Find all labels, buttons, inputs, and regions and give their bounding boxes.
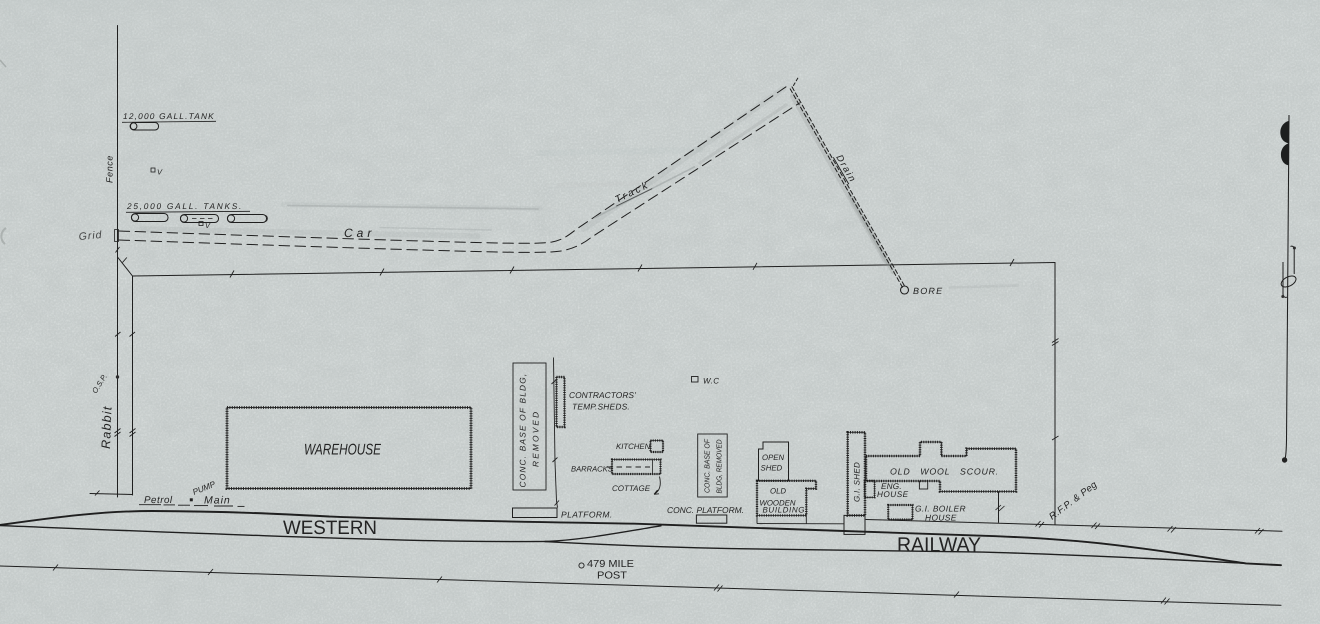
svg-text:W.C: W.C: [703, 377, 719, 386]
svg-text:BUILDING: BUILDING: [763, 506, 806, 515]
svg-text:SHED: SHED: [761, 464, 783, 473]
svg-text:12,000 GALL.TANK: 12,000 GALL.TANK: [123, 111, 215, 121]
svg-text:G.I. SHED: G.I. SHED: [853, 462, 862, 502]
svg-text:KITCHEN: KITCHEN: [616, 442, 651, 451]
svg-text:BLDG, REMOVED: BLDG, REMOVED: [715, 439, 724, 494]
svg-text:PLATFORM.: PLATFORM.: [561, 510, 613, 520]
svg-text:WESTERN: WESTERN: [283, 517, 377, 539]
svg-text:POST: POST: [597, 571, 627, 582]
svg-text:COTTAGE: COTTAGE: [612, 484, 651, 493]
svg-text:Main: Main: [204, 495, 231, 507]
svg-text:Car: Car: [344, 226, 375, 240]
svg-text:25,000 GALL. TANKS.: 25,000 GALL. TANKS.: [126, 201, 243, 211]
svg-text:Grid: Grid: [78, 229, 103, 243]
svg-text:REMOVED: REMOVED: [531, 410, 541, 467]
svg-text:CONC. BASE OF: CONC. BASE OF: [703, 438, 712, 493]
svg-text:BORE: BORE: [913, 286, 943, 296]
svg-text:HOUSE: HOUSE: [877, 490, 909, 499]
svg-text:479 MILE: 479 MILE: [587, 559, 634, 570]
svg-text:TEMP.SHEDS.: TEMP.SHEDS.: [572, 402, 630, 412]
svg-text:CONTRACTORS’: CONTRACTORS’: [569, 390, 636, 400]
svg-text:WAREHOUSE: WAREHOUSE: [304, 442, 382, 459]
svg-text:Rabbit: Rabbit: [99, 405, 115, 449]
svg-text:HOUSE: HOUSE: [925, 513, 957, 523]
svg-text:BARRACKS: BARRACKS: [571, 465, 613, 474]
svg-text:Fence: Fence: [105, 155, 115, 183]
svg-text:CONC. PLATFORM.: CONC. PLATFORM.: [667, 505, 744, 515]
svg-text:RAILWAY: RAILWAY: [897, 534, 981, 557]
svg-text:OLD WOOL SCOUR.: OLD WOOL SCOUR.: [890, 467, 999, 477]
svg-text:OPEN: OPEN: [762, 453, 784, 462]
svg-text:OLD: OLD: [770, 487, 786, 496]
svg-text:CONC. BASE OF BLDG,: CONC. BASE OF BLDG,: [518, 373, 528, 488]
